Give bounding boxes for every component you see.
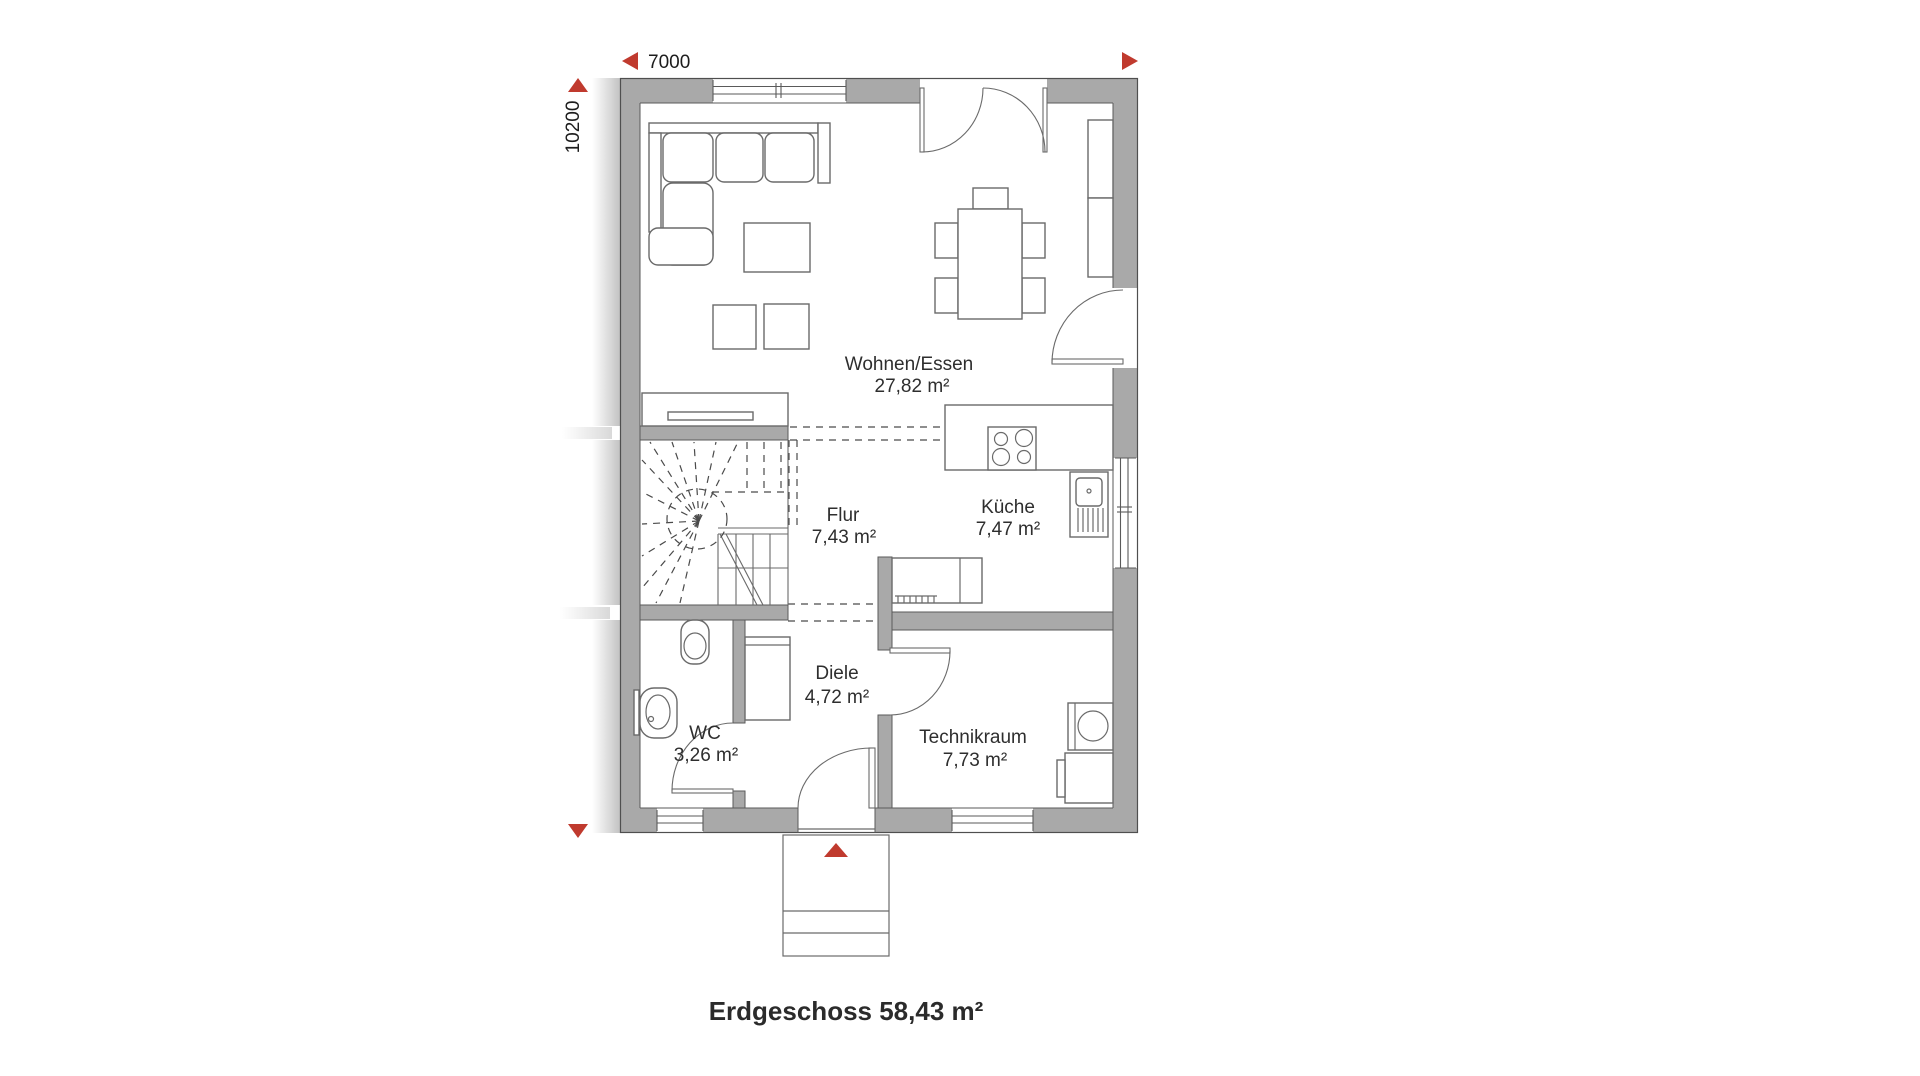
technikraum-door <box>890 648 950 715</box>
dim-width-label: 7000 <box>648 52 690 73</box>
dining-chair <box>935 278 958 313</box>
tall-cabinet <box>1088 120 1113 198</box>
stove <box>988 427 1036 470</box>
tall-cabinet <box>1088 198 1113 277</box>
terrace-door-right <box>1052 290 1123 364</box>
sideboard <box>642 393 788 426</box>
dim-arrow-right-icon <box>1122 52 1138 70</box>
dim-arrow-left-icon <box>622 52 638 70</box>
wall-flur-wc <box>640 605 788 620</box>
kitchen-peninsula <box>892 558 982 603</box>
wall-technik-top <box>892 612 1113 630</box>
party-wall-shadow <box>560 78 620 833</box>
wardrobe <box>745 637 790 720</box>
dim-height-label: 10200 <box>563 101 584 154</box>
room-label-flur: Flur <box>827 505 860 526</box>
wc-fixtures <box>634 620 709 738</box>
stair-upper-flight-dashed <box>642 442 788 603</box>
floorplan-drawing: 7000 10200 Wohnen/Essen 27,82 m² Flur 7,… <box>0 0 1920 1076</box>
entrance-arrow-icon <box>824 843 848 857</box>
ottoman-right <box>764 304 809 349</box>
appliance <box>1057 753 1113 803</box>
room-label-technikraum: Technikraum <box>919 727 1027 748</box>
wall-wohnen-flur <box>640 426 788 440</box>
floorplan-page: 7000 10200 Wohnen/Essen 27,82 m² Flur 7,… <box>0 0 1920 1076</box>
dining-set <box>935 188 1045 319</box>
dim-arrow-down-icon <box>568 824 588 838</box>
dim-arrow-up-icon <box>568 78 588 92</box>
dining-chair <box>1022 278 1045 313</box>
toilet <box>681 620 709 664</box>
room-label-wc: WC <box>689 723 721 744</box>
wall-diele-kueche <box>878 557 892 650</box>
floor-title: Erdgeschoss 58,43 m² <box>709 996 984 1026</box>
dining-chair <box>1022 223 1045 258</box>
wall-wc-right <box>733 620 745 723</box>
dining-chair-top <box>973 188 1008 209</box>
technikraum-appliances <box>1057 703 1113 803</box>
room-area-flur: 7,43 m² <box>812 527 876 548</box>
room-area-wohnen-essen: 27,82 m² <box>875 376 950 397</box>
washing-machine <box>1068 703 1113 750</box>
coffee-table <box>744 223 810 272</box>
staircase <box>642 440 788 605</box>
room-area-diele: 4,72 m² <box>805 687 869 708</box>
room-area-technikraum: 7,73 m² <box>943 750 1007 771</box>
wall-wc-right-stub <box>733 791 745 808</box>
room-area-wc: 3,26 m² <box>674 745 738 766</box>
room-label-diele: Diele <box>815 663 858 684</box>
room-label-wohnen-essen: Wohnen/Essen <box>845 354 974 375</box>
kitchen-sink <box>1070 472 1108 537</box>
dining-chair <box>935 223 958 258</box>
room-area-kueche: 7,47 m² <box>976 519 1040 540</box>
room-label-kueche: Küche <box>981 497 1035 518</box>
dining-table <box>958 209 1022 319</box>
ottoman-left <box>713 305 756 349</box>
wall-diele-technik <box>878 715 892 808</box>
entrance-porch <box>783 835 889 956</box>
